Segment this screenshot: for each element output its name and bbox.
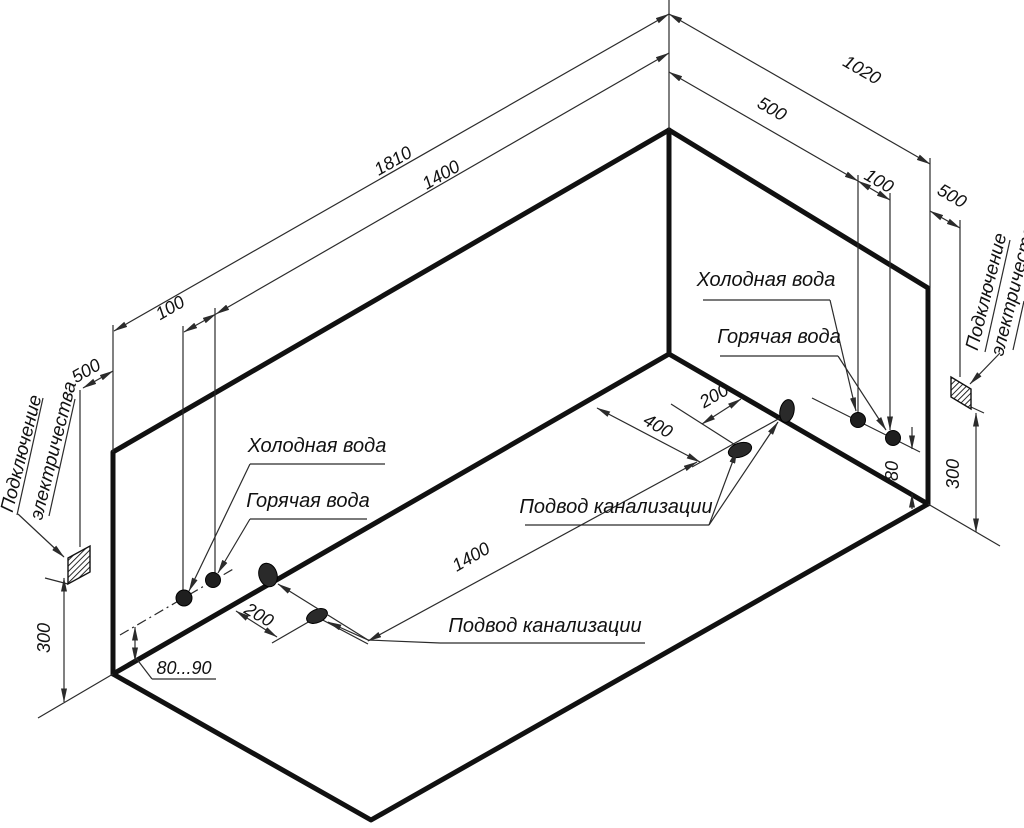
hot-water-point-right: [886, 431, 901, 446]
dimension-500-right-upper-value: 500: [754, 93, 790, 125]
dimension-100-right: 100: [858, 165, 897, 200]
cold-water-point-right: [851, 413, 866, 428]
technical-drawing-page: 1810 1400 100 500 1020 500 100 500 300 8…: [0, 0, 1024, 828]
dimension-1810-value: 1810: [371, 142, 416, 179]
label-sewage-left: Подвод канализации: [278, 584, 645, 643]
dimension-200-left: 200: [236, 598, 277, 637]
floor-drain-right: [726, 440, 753, 461]
extension-floor-drain-left-b: [317, 617, 368, 644]
electric-box-right: [951, 377, 971, 409]
dimension-300-right-value: 300: [943, 459, 963, 489]
dimension-300-left-value: 300: [34, 623, 54, 653]
label-electric-right: Подключение электричества: [962, 215, 1024, 384]
dimension-1400-top: 1400: [216, 53, 669, 314]
cold-water-point-left: [176, 590, 192, 606]
label-sewage-mid-text: Подвод канализации: [519, 496, 712, 518]
label-cold-water-left-text: Холодная вода: [247, 435, 387, 457]
dimension-500-right-electric: 500: [930, 180, 970, 228]
dimension-300-left: 300: [34, 578, 64, 702]
connector-electric-right-bottom: [971, 407, 984, 413]
dimension-1400-top-value: 1400: [419, 156, 464, 193]
extension-floor-corner-left: [38, 674, 113, 718]
hot-water-point-left: [206, 573, 221, 588]
label-cold-water-left: Холодная вода: [189, 435, 386, 591]
label-hot-water-left-text: Горячая вода: [246, 490, 369, 512]
dimension-100-left: 100: [152, 292, 216, 332]
dimension-400-value: 400: [640, 410, 676, 442]
label-cold-water-right-text: Холодная вода: [696, 269, 836, 291]
label-sewage-mid: Подвод канализации: [519, 422, 778, 525]
room-outline: [113, 130, 928, 820]
dimension-1020: 1020: [669, 14, 930, 164]
dimension-80-right-value: 80: [882, 461, 902, 481]
dimension-80-90-value: 80...90: [156, 658, 211, 678]
floor-front-edges: [113, 504, 928, 820]
dimension-100-left-value: 100: [152, 292, 188, 324]
wall-drain-left: [256, 561, 281, 589]
dimension-1810: 1810: [114, 14, 669, 331]
label-sewage-left-text: Подвод канализации: [448, 615, 641, 637]
label-hot-water-left: Горячая вода: [218, 490, 370, 573]
dimension-1020-value: 1020: [840, 51, 885, 88]
label-hot-water-right-text: Горячая вода: [717, 326, 840, 348]
dimension-100-right-value: 100: [861, 165, 897, 197]
dimension-400: 400: [597, 408, 700, 462]
dimension-1400-floor-value: 1400: [449, 538, 494, 575]
dimension-200-left-value: 200: [240, 598, 277, 631]
installation-diagram: 1810 1400 100 500 1020 500 100 500 300 8…: [0, 0, 1024, 828]
extension-floor-corner-right: [928, 504, 1000, 546]
dimension-300-right: 300: [943, 413, 976, 532]
dimension-200-right: 200: [695, 380, 741, 424]
extension-lines: [38, 0, 1000, 718]
dimension-500-right-upper: 500: [669, 72, 858, 181]
label-electric-left: Подключение электричества: [0, 379, 81, 557]
dimension-500-left-value: 500: [68, 355, 104, 387]
electric-box-left: [68, 546, 90, 584]
dimension-500-right-electric-value: 500: [934, 180, 970, 212]
